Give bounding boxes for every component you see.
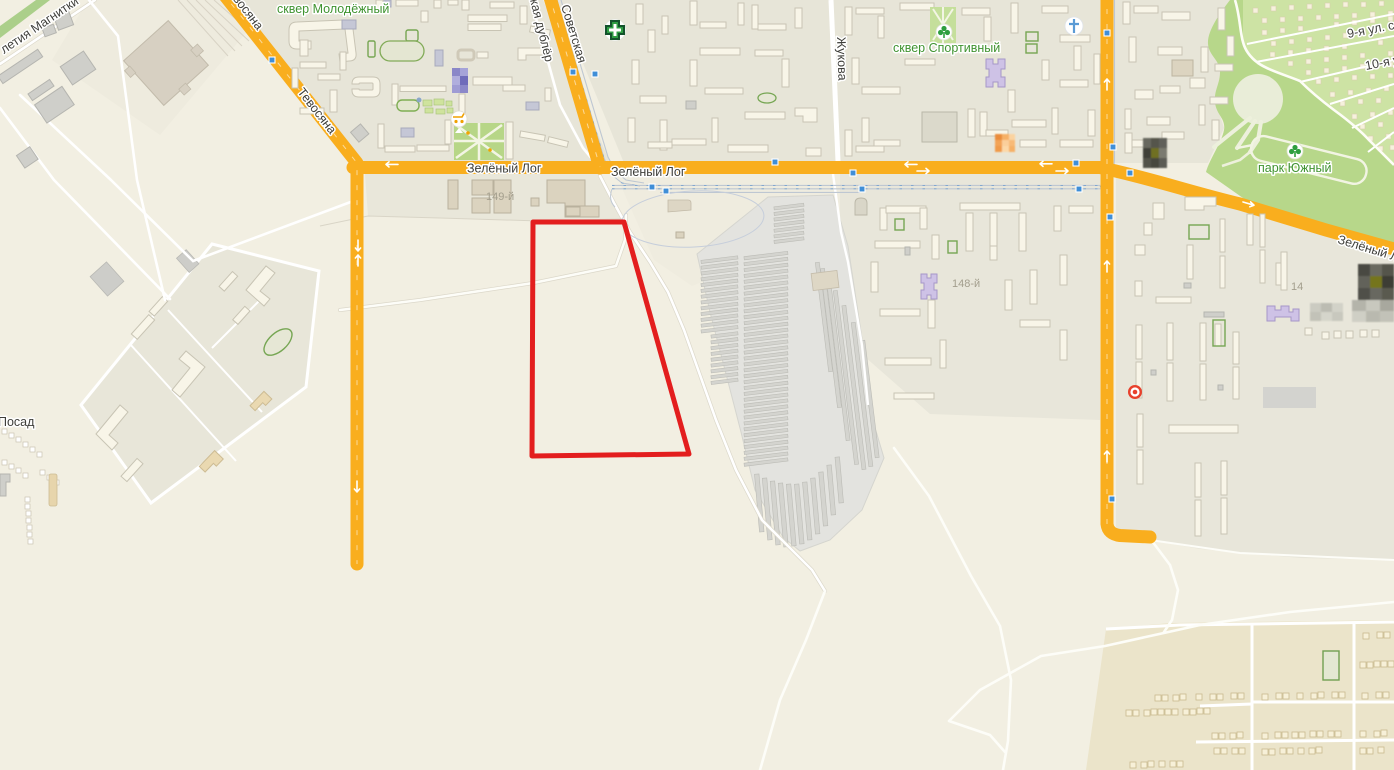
svg-text:сквер Спортивный: сквер Спортивный <box>893 41 1000 55</box>
svg-text:сквер Молодёжный: сквер Молодёжный <box>277 2 389 16</box>
svg-text:148-й: 148-й <box>952 278 980 290</box>
svg-text:Посад: Посад <box>0 415 35 429</box>
svg-text:Зелёный Лог: Зелёный Лог <box>611 165 686 179</box>
svg-text:14: 14 <box>1291 281 1303 293</box>
svg-text:149-й: 149-й <box>486 191 514 203</box>
svg-text:парк Южный: парк Южный <box>1258 161 1331 175</box>
svg-text:Зелёный Лог: Зелёный Лог <box>467 162 542 176</box>
svg-text:Жукова: Жукова <box>834 37 850 81</box>
